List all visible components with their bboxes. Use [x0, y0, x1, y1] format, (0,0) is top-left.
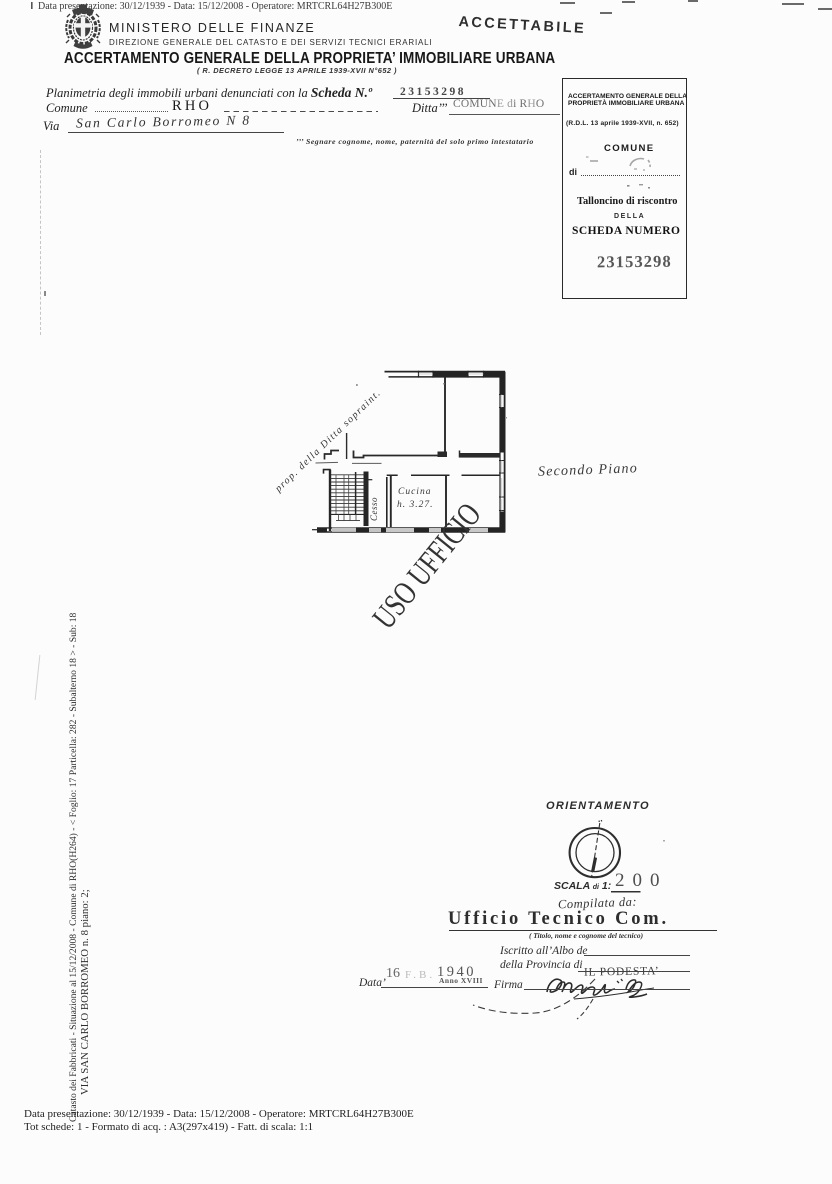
svg-text:USO UFFICIO: USO UFFICIO: [366, 497, 488, 636]
